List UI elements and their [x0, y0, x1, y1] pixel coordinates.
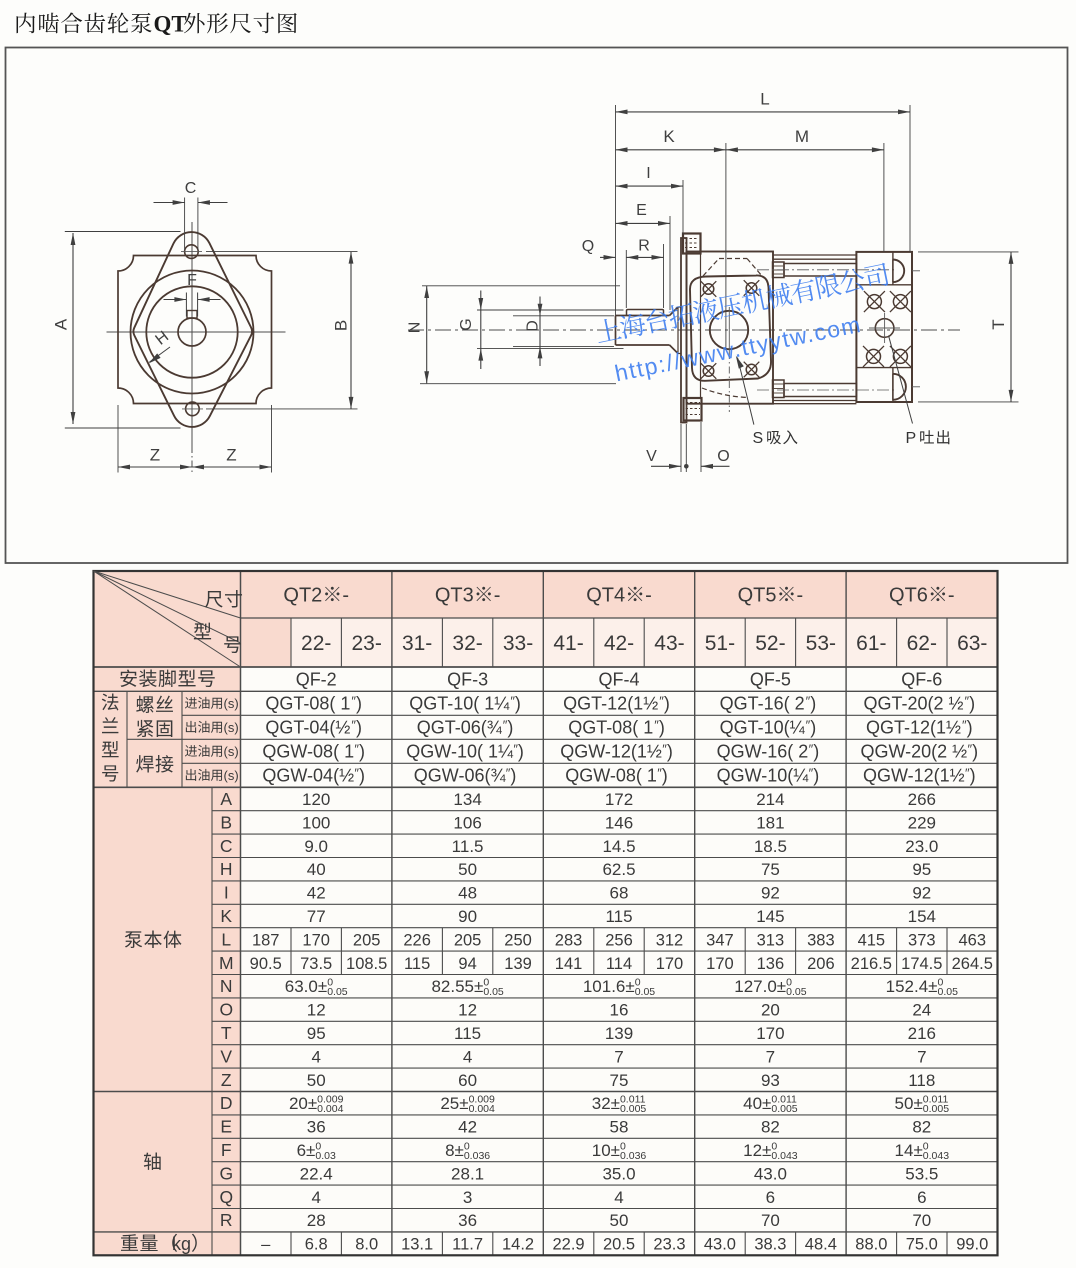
svg-text:50: 50 [307, 1071, 326, 1090]
svg-text:0.05: 0.05 [786, 986, 807, 998]
svg-text:24: 24 [912, 1001, 931, 1020]
svg-text:QGW-08( 1: QGW-08( 1 [262, 741, 354, 761]
svg-text:D: D [525, 320, 542, 332]
svg-text:170: 170 [302, 931, 330, 949]
svg-text:205: 205 [454, 931, 482, 949]
svg-text:): ) [359, 741, 365, 761]
svg-text:70: 70 [912, 1211, 931, 1230]
svg-text:QGT-20(2 ½: QGT-20(2 ½ [863, 693, 963, 713]
svg-text:61-: 61- [856, 632, 886, 655]
svg-text:): ) [659, 717, 665, 737]
svg-text:108.5: 108.5 [346, 955, 387, 973]
svg-text:115: 115 [404, 955, 430, 973]
svg-text:70: 70 [761, 1211, 780, 1230]
svg-text:3: 3 [463, 1188, 472, 1207]
svg-text:): ) [810, 717, 816, 737]
svg-text:134: 134 [453, 790, 481, 809]
svg-text:L: L [221, 929, 231, 949]
svg-text:106: 106 [453, 813, 481, 832]
svg-text:0.043: 0.043 [771, 1150, 797, 1162]
svg-text:0.05: 0.05 [938, 986, 959, 998]
svg-text:136: 136 [757, 955, 785, 973]
svg-text:347: 347 [706, 931, 734, 949]
svg-text:10±: 10± [592, 1141, 620, 1160]
svg-text:43.0: 43.0 [704, 1236, 736, 1254]
svg-text:QGT-08( 1: QGT-08( 1 [265, 693, 350, 713]
svg-text:H: H [220, 859, 233, 879]
svg-text:0.004: 0.004 [469, 1103, 495, 1115]
svg-text:O: O [717, 448, 729, 465]
svg-text:152.4±: 152.4± [886, 977, 938, 996]
svg-text:114: 114 [606, 955, 632, 973]
svg-text:): ) [967, 717, 973, 737]
svg-text:QGW-04(½: QGW-04(½ [262, 765, 354, 785]
svg-text:172: 172 [605, 790, 633, 809]
svg-text:QT2: QT2 [283, 585, 322, 607]
svg-text:C: C [185, 180, 197, 197]
svg-text:53.5: 53.5 [905, 1164, 938, 1183]
svg-text:QT3: QT3 [435, 585, 474, 607]
svg-text:14±: 14± [895, 1141, 923, 1160]
svg-text:): ) [667, 741, 673, 761]
svg-text:(s): (s) [224, 744, 239, 759]
svg-text:(s): (s) [224, 768, 239, 783]
svg-text:146: 146 [605, 813, 633, 832]
svg-text:214: 214 [756, 790, 784, 809]
svg-text:12: 12 [458, 1001, 477, 1020]
svg-text:216: 216 [908, 1024, 936, 1043]
svg-text:43.0: 43.0 [754, 1164, 787, 1183]
svg-text:264.5: 264.5 [952, 955, 993, 973]
svg-text:226: 226 [403, 931, 431, 949]
svg-text:6: 6 [766, 1188, 775, 1207]
svg-text:QGW-10( 1¼: QGW-10( 1¼ [406, 741, 514, 761]
svg-text:): ) [510, 765, 516, 785]
svg-text:0.05: 0.05 [635, 986, 656, 998]
svg-text:23.0: 23.0 [905, 837, 938, 856]
svg-text:229: 229 [908, 813, 936, 832]
svg-text:141: 141 [555, 955, 583, 973]
svg-text:62.5: 62.5 [602, 860, 635, 879]
svg-text:12: 12 [307, 1001, 326, 1020]
svg-text:QGT-12(1½: QGT-12(1½ [563, 693, 658, 713]
svg-text:99.0: 99.0 [956, 1236, 988, 1254]
svg-text:94: 94 [458, 955, 476, 973]
svg-text:42: 42 [458, 1118, 477, 1137]
svg-text:D: D [220, 1093, 233, 1113]
svg-text:QGT-06(¾: QGT-06(¾ [417, 717, 503, 737]
svg-text:QF-4: QF-4 [598, 670, 639, 690]
svg-text:23.3: 23.3 [653, 1236, 685, 1254]
svg-text:22-: 22- [301, 632, 331, 655]
svg-text:): ) [515, 693, 521, 713]
svg-text:QGW-12(1½: QGW-12(1½ [863, 765, 965, 785]
svg-text:QGW-08( 1: QGW-08( 1 [565, 765, 657, 785]
svg-text:35.0: 35.0 [602, 1164, 635, 1183]
svg-text:E: E [636, 202, 647, 219]
svg-text:312: 312 [656, 931, 684, 949]
svg-text:QT4: QT4 [586, 585, 625, 607]
svg-text:90: 90 [458, 907, 477, 926]
svg-text:38.3: 38.3 [754, 1236, 786, 1254]
svg-text:33-: 33- [503, 632, 533, 655]
svg-text:90.5: 90.5 [250, 955, 282, 973]
svg-text:120: 120 [302, 790, 330, 809]
svg-text:0.036: 0.036 [620, 1150, 646, 1162]
svg-text:0.036: 0.036 [464, 1150, 490, 1162]
svg-text:31-: 31- [402, 632, 432, 655]
svg-text:B: B [332, 320, 351, 331]
svg-text:A: A [52, 318, 71, 330]
svg-text:QGW-12(1½: QGW-12(1½ [560, 741, 662, 761]
svg-text:82: 82 [912, 1118, 931, 1137]
svg-text:52-: 52- [755, 632, 785, 655]
svg-text:): ) [813, 741, 819, 761]
svg-text:154: 154 [908, 907, 936, 926]
svg-text:77: 77 [307, 907, 326, 926]
svg-text:QGT-10(¼: QGT-10(¼ [720, 717, 806, 737]
svg-text:23-: 23- [351, 632, 381, 655]
svg-text:95: 95 [307, 1024, 326, 1043]
svg-text:32-: 32- [452, 632, 482, 655]
svg-text:): ) [810, 693, 816, 713]
svg-text:): ) [359, 765, 365, 785]
svg-text:): ) [969, 693, 975, 713]
svg-text:42-: 42- [604, 632, 634, 655]
svg-text:40: 40 [307, 860, 326, 879]
svg-text:E: E [220, 1117, 232, 1137]
svg-text:0.05: 0.05 [483, 986, 504, 998]
svg-text:QGT-12(1½: QGT-12(1½ [866, 717, 961, 737]
svg-text:36: 36 [307, 1118, 326, 1137]
svg-text:63-: 63- [957, 632, 987, 655]
svg-text:P: P [906, 430, 917, 447]
svg-text:48: 48 [458, 884, 477, 903]
svg-text:4: 4 [311, 1047, 320, 1066]
svg-text:N: N [407, 322, 424, 334]
svg-text:L: L [760, 90, 769, 109]
svg-text:0.005: 0.005 [771, 1103, 797, 1115]
svg-text:): ) [356, 717, 362, 737]
svg-text:Z: Z [221, 1070, 232, 1090]
svg-text:50: 50 [610, 1211, 629, 1230]
svg-text:118: 118 [908, 1071, 935, 1090]
svg-text:C: C [220, 836, 233, 856]
svg-text:174.5: 174.5 [901, 955, 942, 973]
svg-text:42: 42 [307, 884, 326, 903]
svg-text:0.05: 0.05 [327, 986, 348, 998]
svg-text:): ) [813, 765, 819, 785]
svg-text:25±: 25± [440, 1094, 468, 1113]
svg-text:Q: Q [219, 1187, 233, 1207]
svg-text:73.5: 73.5 [300, 955, 332, 973]
svg-text:M: M [795, 127, 809, 146]
svg-text:216.5: 216.5 [851, 955, 892, 973]
svg-text:R: R [220, 1210, 233, 1230]
svg-text:V: V [646, 448, 657, 465]
svg-text:T: T [221, 1023, 232, 1043]
svg-text:QGT-04(½: QGT-04(½ [265, 717, 350, 737]
svg-text:88.0: 88.0 [855, 1236, 887, 1254]
svg-text:20: 20 [761, 1001, 780, 1020]
svg-text:QGW-16( 2: QGW-16( 2 [717, 741, 809, 761]
svg-text:383: 383 [807, 931, 835, 949]
svg-text:101.6±: 101.6± [583, 977, 635, 996]
svg-text:51-: 51- [705, 632, 735, 655]
svg-text:62-: 62- [907, 632, 937, 655]
svg-text:139: 139 [605, 1024, 633, 1043]
svg-text:14.2: 14.2 [502, 1236, 534, 1254]
svg-text:50±: 50± [895, 1094, 923, 1113]
svg-text:313: 313 [757, 931, 785, 949]
svg-text:32±: 32± [592, 1094, 620, 1113]
svg-text:115: 115 [605, 907, 632, 926]
svg-text:Q: Q [582, 238, 594, 255]
svg-text:0.03: 0.03 [315, 1150, 336, 1162]
svg-text:QGW-06(¾: QGW-06(¾ [414, 765, 507, 785]
svg-text:): ) [507, 717, 513, 737]
svg-text:7: 7 [614, 1047, 623, 1066]
svg-text:0.004: 0.004 [317, 1103, 343, 1115]
svg-text:S: S [753, 430, 764, 447]
svg-text:I: I [646, 165, 650, 182]
svg-text:kg: kg [172, 1234, 191, 1254]
svg-text:QF-6: QF-6 [901, 670, 942, 690]
svg-text:43-: 43- [654, 632, 684, 655]
svg-text:41-: 41- [553, 632, 583, 655]
svg-text:-: - [948, 585, 955, 607]
svg-text:92: 92 [761, 884, 780, 903]
svg-text:QT6: QT6 [889, 585, 928, 607]
svg-text:): ) [970, 765, 976, 785]
svg-text:QT5: QT5 [738, 585, 777, 607]
svg-text:G: G [458, 318, 475, 330]
svg-text:206: 206 [807, 955, 835, 973]
svg-text:11.5: 11.5 [452, 837, 484, 856]
svg-text:283: 283 [555, 931, 583, 949]
svg-text:V: V [220, 1046, 232, 1066]
svg-text:Z: Z [150, 446, 160, 465]
svg-text:36: 36 [458, 1211, 477, 1230]
svg-text:205: 205 [353, 931, 381, 949]
svg-text:-: - [797, 585, 804, 607]
svg-text:53-: 53- [806, 632, 836, 655]
svg-text:82.55±: 82.55± [431, 977, 483, 996]
svg-text:0.005: 0.005 [923, 1103, 949, 1115]
svg-text:18.5: 18.5 [754, 837, 787, 856]
svg-text:256: 256 [605, 931, 633, 949]
svg-text:0.005: 0.005 [620, 1103, 646, 1115]
svg-text:95: 95 [912, 860, 931, 879]
svg-text:170: 170 [756, 1024, 784, 1043]
svg-text:415: 415 [858, 931, 886, 949]
svg-text:F: F [221, 1140, 232, 1160]
svg-text:4: 4 [614, 1188, 623, 1207]
svg-text:115: 115 [454, 1024, 481, 1043]
svg-text:): ) [664, 693, 670, 713]
svg-text:QGT-16( 2: QGT-16( 2 [720, 693, 805, 713]
svg-text:181: 181 [756, 813, 784, 832]
svg-text:): ) [972, 741, 978, 761]
svg-text:373: 373 [908, 931, 936, 949]
svg-text:I: I [224, 883, 229, 903]
svg-text:4: 4 [463, 1047, 472, 1066]
svg-text:-: - [645, 585, 652, 607]
svg-text:Z: Z [226, 446, 236, 465]
svg-text:11.7: 11.7 [452, 1236, 483, 1254]
svg-text:75: 75 [761, 860, 780, 879]
svg-text:8.0: 8.0 [355, 1236, 378, 1254]
svg-text:170: 170 [706, 955, 734, 973]
svg-text:92: 92 [912, 884, 931, 903]
svg-text:40±: 40± [743, 1094, 771, 1113]
svg-text:4: 4 [311, 1188, 320, 1207]
svg-text:7: 7 [917, 1047, 926, 1066]
svg-text:250: 250 [504, 931, 532, 949]
svg-text:63.0±: 63.0± [285, 977, 327, 996]
svg-text:F: F [187, 272, 197, 289]
svg-text:20±: 20± [289, 1094, 317, 1113]
svg-text:6: 6 [917, 1188, 926, 1207]
svg-text:QF-3: QF-3 [447, 670, 488, 690]
svg-text:145: 145 [756, 907, 784, 926]
svg-text:): ) [662, 765, 668, 785]
svg-text:9.0: 9.0 [304, 837, 328, 856]
svg-text:12±: 12± [743, 1141, 771, 1160]
svg-text:463: 463 [959, 931, 987, 949]
svg-text:6±: 6± [297, 1141, 316, 1160]
svg-text:K: K [220, 906, 232, 926]
svg-text:B: B [220, 812, 232, 832]
svg-text:(s): (s) [224, 696, 239, 711]
svg-text:50: 50 [458, 860, 477, 879]
svg-text:QF-2: QF-2 [296, 670, 337, 690]
svg-text:-: - [494, 585, 501, 607]
svg-text:48.4: 48.4 [805, 1236, 837, 1254]
svg-text:16: 16 [610, 1001, 629, 1020]
svg-text:266: 266 [908, 790, 936, 809]
svg-text:G: G [219, 1163, 233, 1183]
svg-text:28: 28 [307, 1211, 326, 1230]
svg-text:6.8: 6.8 [305, 1236, 328, 1254]
svg-text:–: – [261, 1236, 271, 1254]
svg-text:QT: QT [154, 12, 187, 37]
svg-text:A: A [220, 789, 232, 809]
svg-text:60: 60 [458, 1071, 477, 1090]
svg-text:139: 139 [504, 955, 532, 973]
svg-text:127.0±: 127.0± [734, 977, 786, 996]
svg-text:28.1: 28.1 [451, 1164, 484, 1183]
svg-text:170: 170 [656, 955, 684, 973]
svg-text:93: 93 [761, 1071, 780, 1090]
svg-text:187: 187 [252, 931, 280, 949]
svg-text:8±: 8± [445, 1141, 464, 1160]
svg-text:22.9: 22.9 [552, 1236, 584, 1254]
svg-text:O: O [219, 1000, 233, 1020]
svg-text:): ) [518, 741, 524, 761]
svg-text:QGW-10(¼: QGW-10(¼ [717, 765, 810, 785]
svg-text:): ) [356, 693, 362, 713]
svg-text:22.4: 22.4 [300, 1164, 333, 1183]
svg-text:QGT-10( 1¼: QGT-10( 1¼ [409, 693, 510, 713]
svg-text:75.0: 75.0 [906, 1236, 938, 1254]
svg-text:0.043: 0.043 [923, 1150, 949, 1162]
svg-text:QGW-20(2 ½: QGW-20(2 ½ [860, 741, 967, 761]
svg-text:QF-5: QF-5 [750, 670, 791, 690]
svg-text:QGT-08( 1: QGT-08( 1 [568, 717, 653, 737]
svg-text:N: N [220, 976, 233, 996]
svg-text:20.5: 20.5 [603, 1236, 635, 1254]
svg-text:13.1: 13.1 [401, 1236, 433, 1254]
svg-text:82: 82 [761, 1118, 780, 1137]
svg-text:R: R [638, 238, 650, 255]
svg-text:T: T [989, 319, 1008, 329]
svg-text:68: 68 [610, 884, 629, 903]
svg-text:58: 58 [610, 1118, 629, 1137]
svg-text:K: K [663, 127, 675, 146]
svg-text:M: M [219, 953, 234, 973]
svg-text:-: - [342, 585, 349, 607]
svg-text:(s): (s) [224, 720, 239, 735]
svg-text:14.5: 14.5 [602, 837, 635, 856]
svg-text:100: 100 [302, 813, 330, 832]
svg-text:75: 75 [610, 1071, 629, 1090]
svg-text:7: 7 [766, 1047, 775, 1066]
